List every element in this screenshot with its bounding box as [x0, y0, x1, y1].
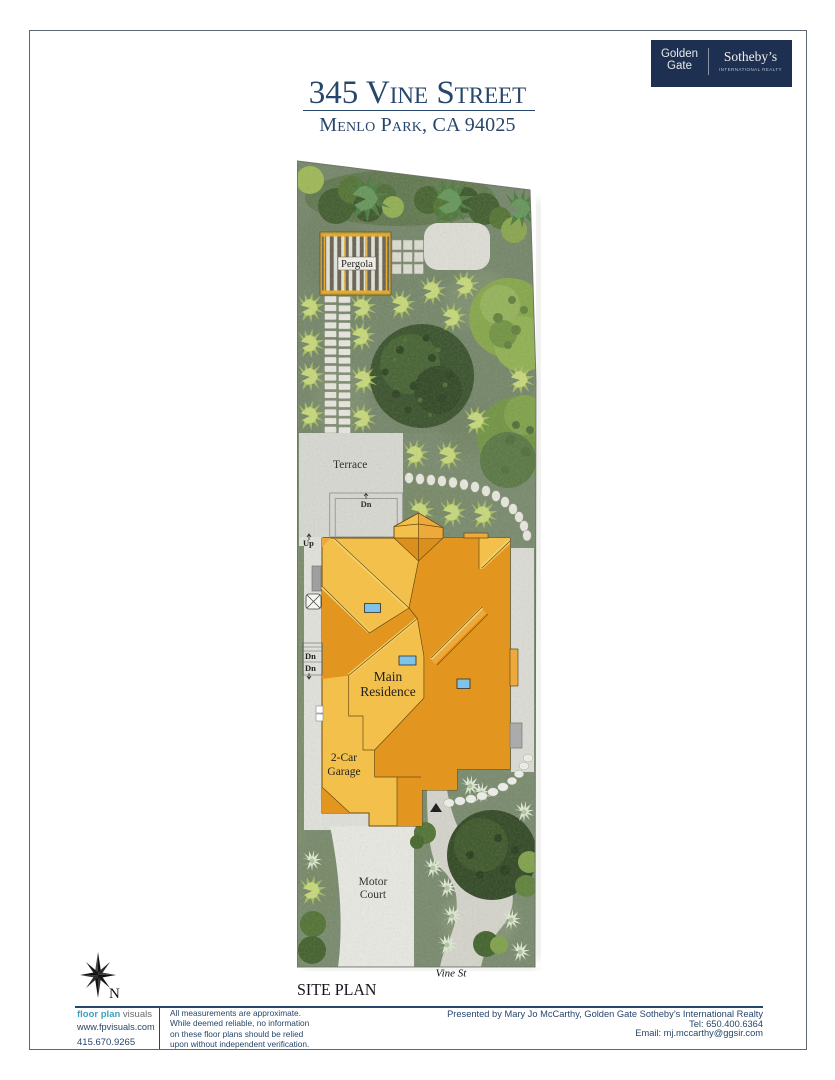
svg-text:N: N [109, 986, 120, 1001]
svg-text:2-Car: 2-Car [331, 752, 357, 764]
svg-text:Up: Up [303, 538, 314, 548]
svg-text:Dn: Dn [305, 663, 316, 673]
svg-text:Garage: Garage [327, 766, 360, 778]
svg-text:Residence: Residence [360, 684, 415, 699]
svg-text:Main: Main [374, 669, 403, 684]
svg-text:Vine St: Vine St [436, 968, 468, 980]
svg-text:Dn: Dn [305, 651, 316, 661]
